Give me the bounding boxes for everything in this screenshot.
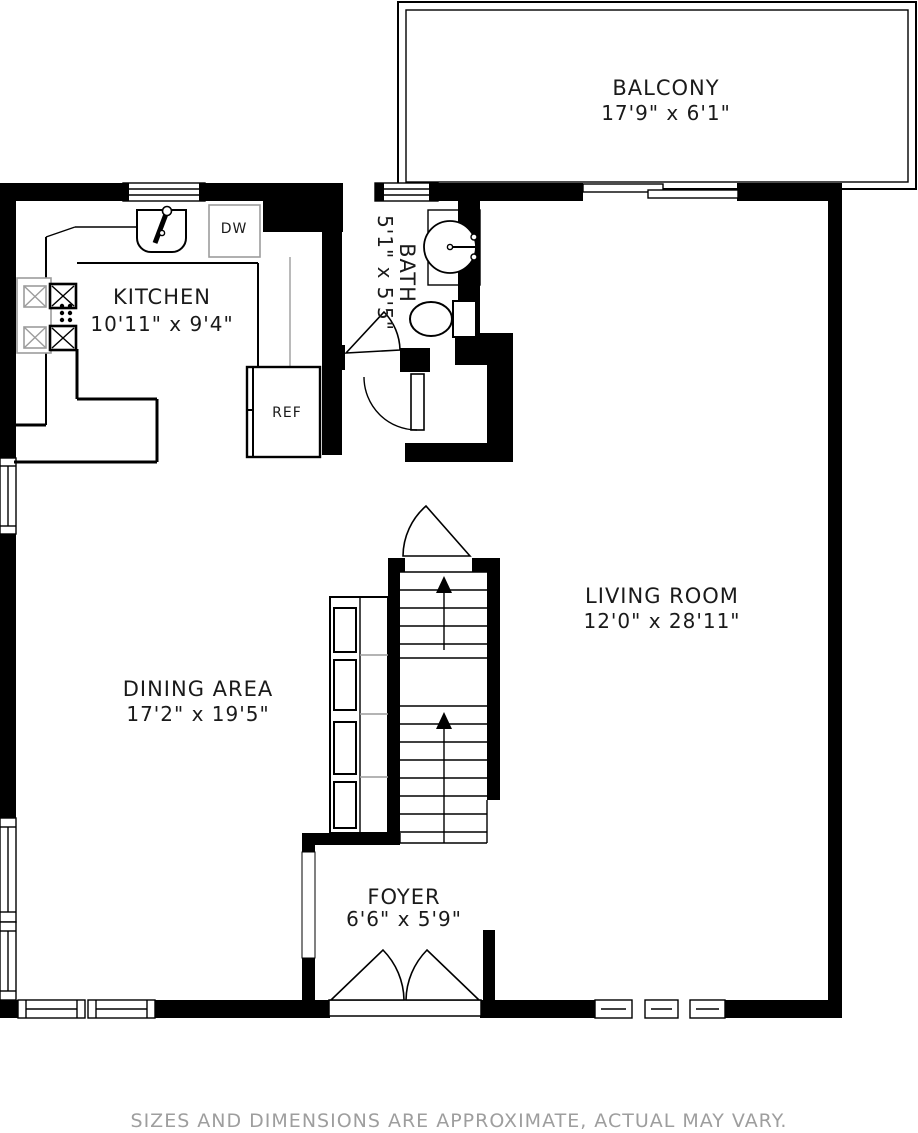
closet-door [364, 374, 424, 430]
refrigerator-label: REF [272, 405, 302, 421]
bottom-left-windows [18, 1000, 155, 1018]
bottom-right-windows [595, 1000, 725, 1018]
kitchen-name: KITCHEN [113, 285, 211, 309]
room-label-balcony: BALCONY 17'9" x 6'1" [601, 76, 731, 125]
balcony-name: BALCONY [612, 76, 719, 100]
entry-doors [329, 950, 481, 1016]
stove-icon [17, 278, 76, 353]
foyer-dims: 6'6" x 5'9" [346, 907, 462, 931]
room-label-living-room: LIVING ROOM 12'0" x 28'11" [583, 584, 740, 633]
foyer-opening [302, 852, 315, 958]
bath-dims: 5'1" x 5'5" [373, 215, 397, 331]
balcony-dims: 17'9" x 6'1" [601, 101, 731, 125]
stair-arrow-up-icon [436, 576, 452, 650]
floor-plan: DW REF [0, 0, 918, 1133]
foyer-name: FOYER [367, 885, 440, 909]
entry-threshold [329, 1000, 481, 1016]
room-label-dining-area: DINING AREA 17'2" x 19'5" [123, 677, 274, 726]
entry-door-left-swing [331, 950, 404, 1000]
kitchen-sink-icon [137, 207, 186, 253]
kitchen-dims: 10'11" x 9'4" [90, 312, 233, 336]
refrigerator-icon: REF [247, 367, 320, 457]
toilet-icon [410, 301, 476, 337]
dining-area-dims: 17'2" x 19'5" [126, 702, 269, 726]
staircase [400, 506, 487, 843]
balcony-sliding-door [583, 184, 738, 198]
dishwasher-label: DW [221, 221, 248, 237]
living-room-name: LIVING ROOM [585, 584, 739, 608]
bath-window [375, 183, 438, 201]
room-label-kitchen: KITCHEN 10'11" x 9'4" [90, 285, 233, 336]
room-label-foyer: FOYER 6'6" x 5'9" [346, 885, 462, 931]
left-window-upper [0, 458, 16, 534]
living-room-dims: 12'0" x 28'11" [583, 609, 740, 633]
dishwasher-icon: DW [209, 205, 260, 257]
wardrobe-cabinet [330, 597, 388, 833]
stairs-door-swing [403, 506, 470, 556]
disclaimer-text: SIZES AND DIMENSIONS ARE APPROXIMATE, AC… [131, 1110, 788, 1132]
entry-door-right-swing [406, 950, 479, 1000]
bath-name: BATH [395, 243, 419, 303]
kitchen-window [123, 183, 205, 201]
left-window-lower [0, 818, 16, 1000]
dining-area-name: DINING AREA [123, 677, 274, 701]
